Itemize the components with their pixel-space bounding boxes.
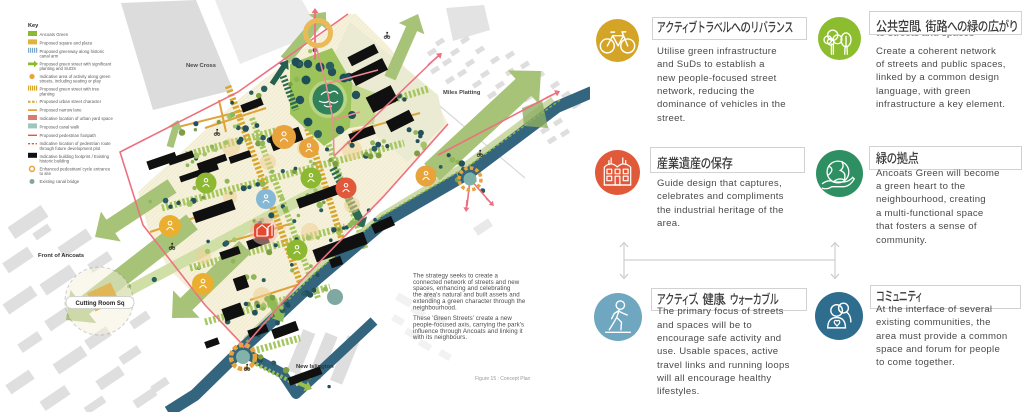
svg-text:planting: planting: [40, 91, 56, 96]
svg-text:streets, including seating or: streets, including seating or play: [40, 79, 102, 84]
svg-text:Existing canal bridge: Existing canal bridge: [40, 179, 80, 184]
svg-text:Proposed narrow lane: Proposed narrow lane: [40, 108, 83, 113]
svg-text:Proposed urban street characte: Proposed urban street character: [40, 99, 102, 104]
svg-text:with its neighbours.: with its neighbours.: [412, 334, 467, 341]
svg-text:New Cross: New Cross: [186, 63, 216, 69]
svg-text:neighbourhood.: neighbourhood.: [413, 304, 457, 311]
svg-text:to site: to site: [40, 171, 52, 176]
svg-text:Proposed pedestrian footpath: Proposed pedestrian footpath: [40, 133, 97, 138]
svg-text:Key: Key: [28, 23, 39, 29]
svg-text:Front of Ancoats: Front of Ancoats: [38, 253, 84, 259]
svg-text:canal arm: canal arm: [40, 54, 59, 59]
svg-text:planting and SUDS: planting and SUDS: [40, 66, 77, 71]
svg-text:Cutting Room Sq: Cutting Room Sq: [76, 301, 125, 307]
svg-text:New Islington: New Islington: [296, 364, 334, 370]
svg-text:Ancoats Green: Ancoats Green: [40, 32, 69, 37]
svg-text:Proposed canal walk: Proposed canal walk: [40, 124, 81, 129]
svg-text:Figure 15 : Concept Plan: Figure 15 : Concept Plan: [475, 376, 531, 382]
svg-text:Indicative location of urban y: Indicative location of urban yard space: [40, 116, 114, 121]
svg-text:Miles Platting: Miles Platting: [443, 90, 481, 96]
svg-text:through future development plo: through future development plot: [40, 146, 101, 151]
svg-text:historic building: historic building: [40, 159, 70, 164]
svg-text:Proposed square and plaza: Proposed square and plaza: [40, 40, 93, 45]
